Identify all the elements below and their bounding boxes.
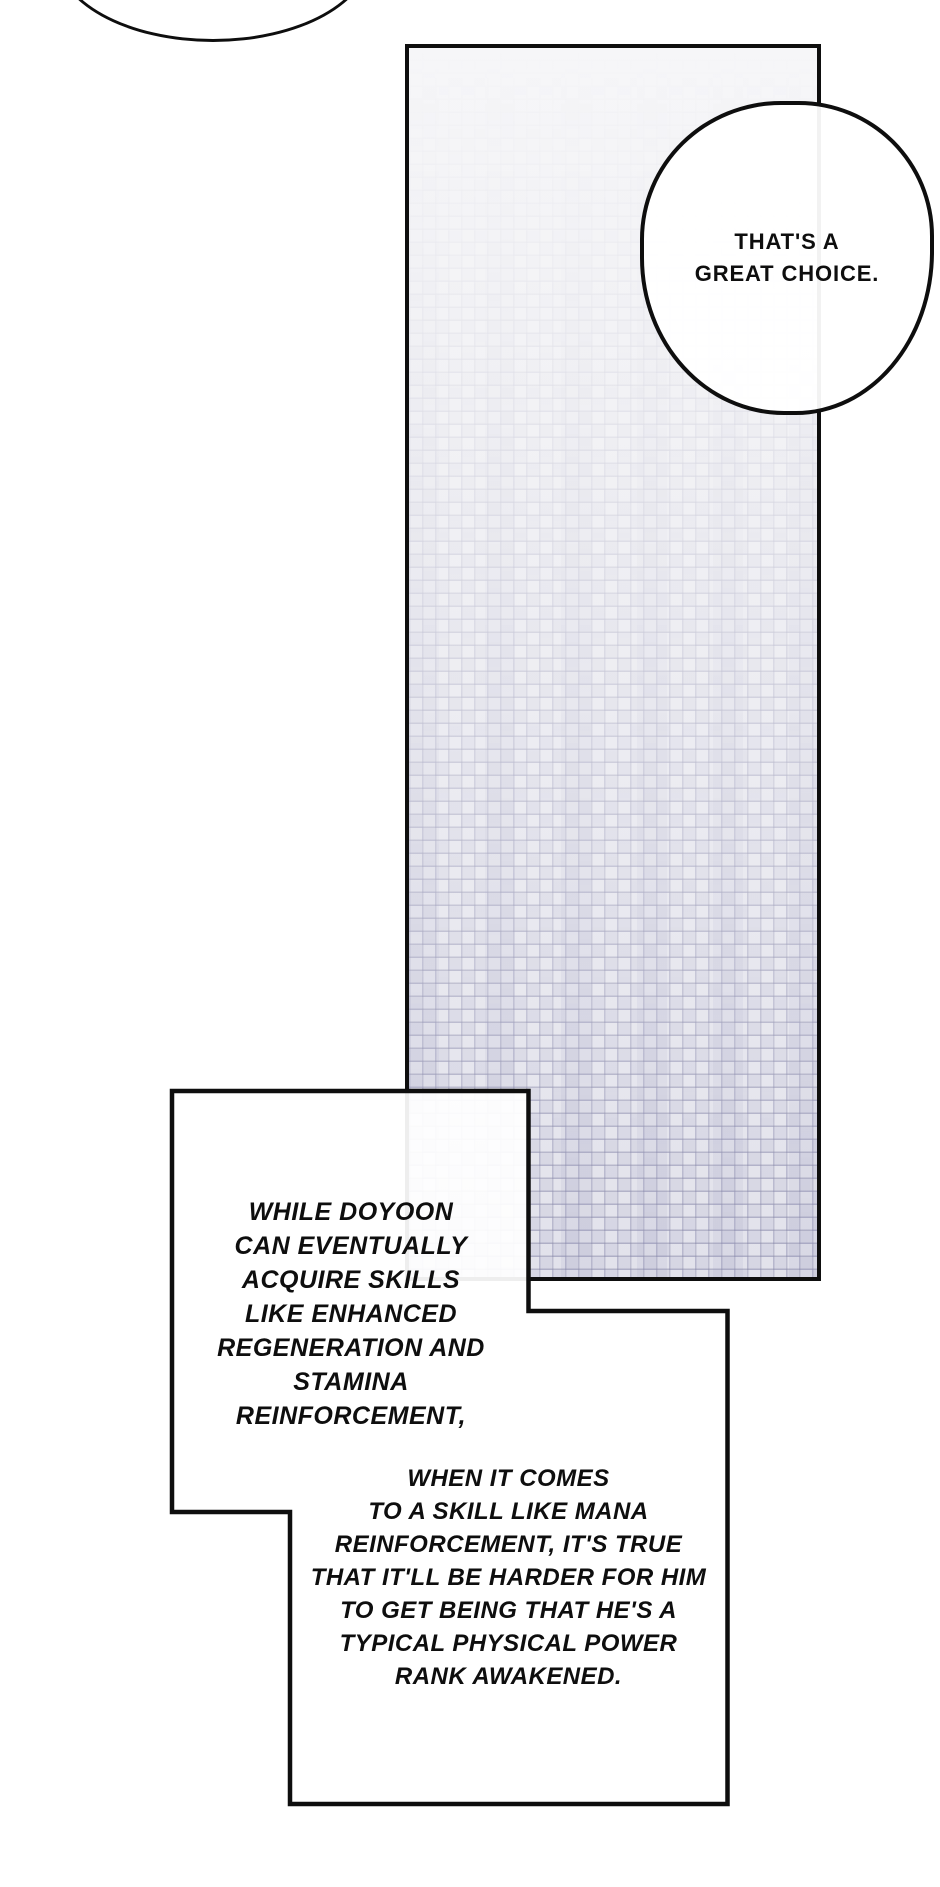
- speech-bubble-text: THAT'S A GREAT CHOICE.: [695, 226, 880, 290]
- speech-bubble-great-choice: THAT'S A GREAT CHOICE.: [640, 101, 934, 415]
- comic-page: WHILE DOYOON CAN EVENTUALLY ACQUIRE SKIL…: [0, 0, 940, 1887]
- caption-text-mana-reinforcement: WHEN IT COMES TO A SKILL LIKE MANA REINF…: [293, 1314, 724, 1801]
